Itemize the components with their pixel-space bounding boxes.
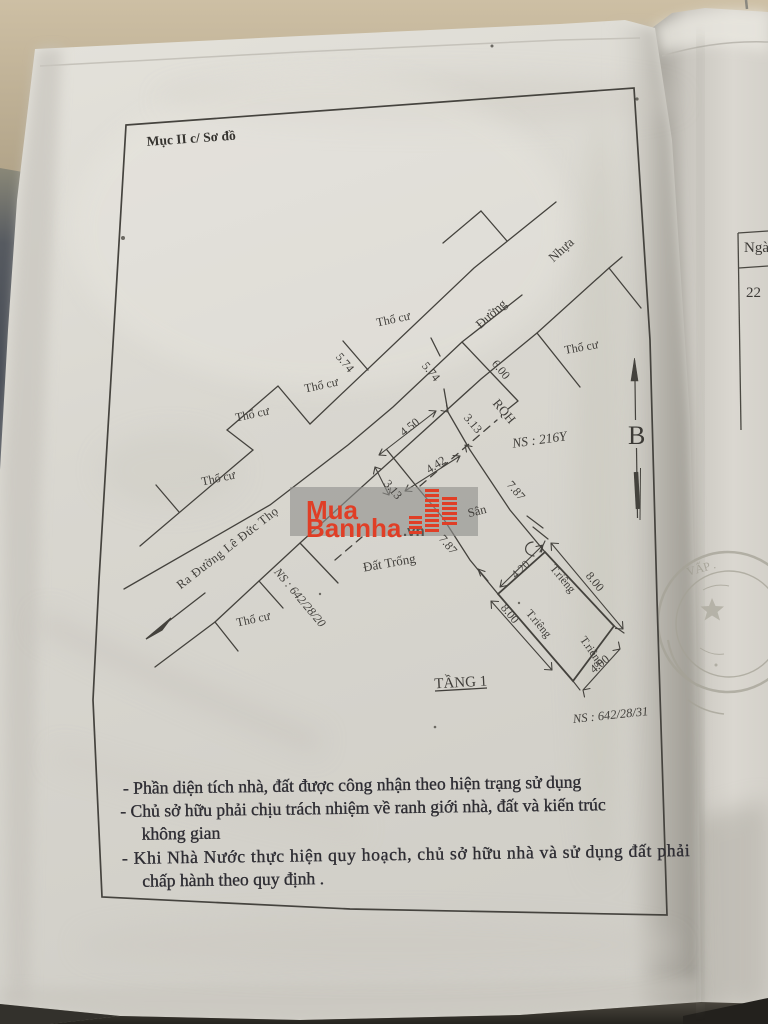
svg-text:B: B (628, 421, 645, 450)
svg-text:chấp hành theo quy định .: chấp hành theo quy định . (142, 868, 324, 891)
svg-text:22: 22 (746, 285, 761, 301)
svg-text:Bannha: Bannha (306, 513, 402, 543)
svg-text:Ngà: Ngà (744, 240, 768, 256)
svg-text:không gian: không gian (141, 823, 220, 844)
